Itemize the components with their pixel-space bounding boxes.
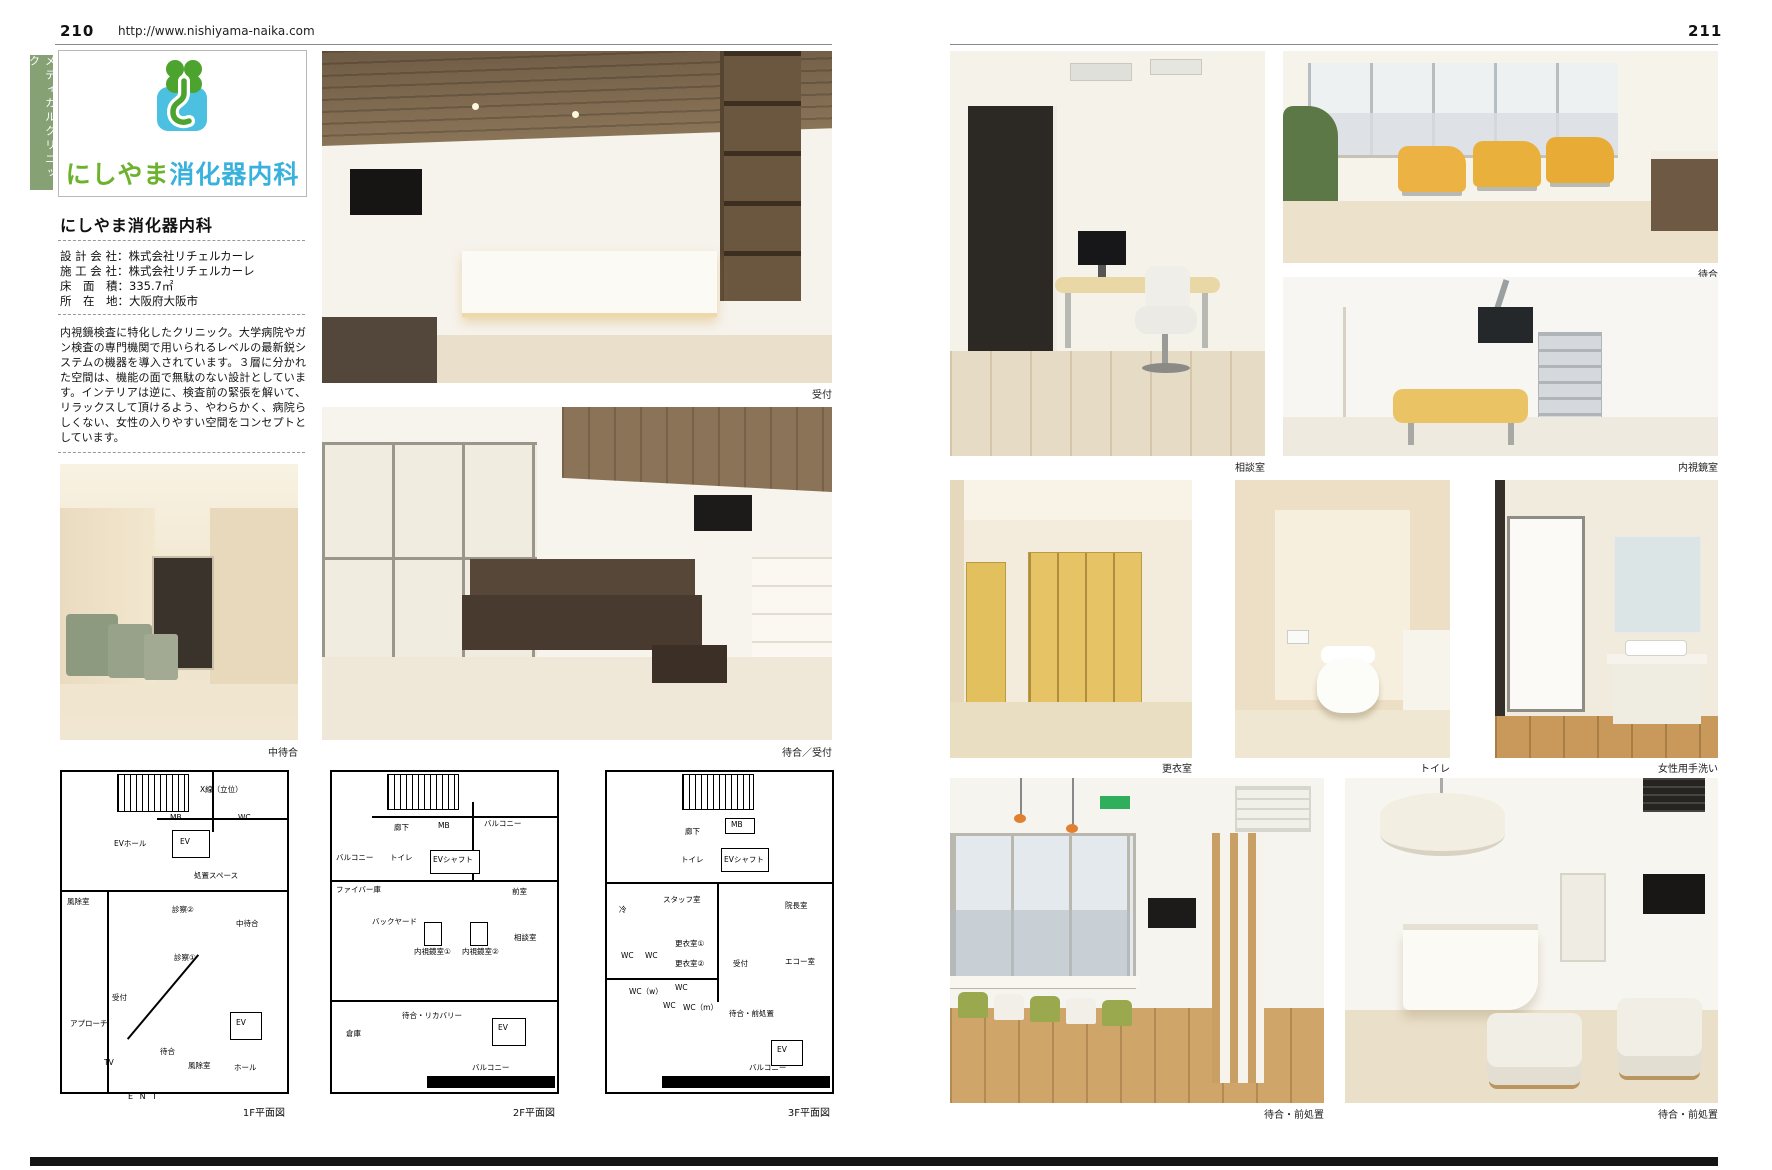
category-tab: メディカルクリニック: [30, 55, 53, 190]
recliner-chair: [1473, 141, 1541, 187]
recliner-chair: [1546, 137, 1614, 183]
monitor-stand: [1098, 265, 1106, 277]
page-title: にしやま消化器内科: [60, 212, 213, 236]
floor-shape: [950, 351, 1265, 456]
endoscopy-tower: [1538, 332, 1602, 429]
photo-changing-room: [950, 480, 1192, 758]
wood-counter: [1651, 159, 1718, 231]
plan-label: エコー室: [785, 958, 815, 966]
plan-wall: [332, 1000, 557, 1002]
pendant-cord: [1020, 778, 1022, 816]
stairs-symbol: [387, 774, 459, 810]
plan-label: ホール: [234, 1064, 257, 1072]
window-counter: [950, 976, 1140, 988]
desk-leg: [1202, 293, 1208, 348]
plan-label: 処置スペース: [194, 872, 238, 880]
info-value: 大阪府大阪市: [129, 294, 198, 308]
plan-label: WC: [663, 1002, 676, 1010]
caption-waiting-pretreat-left: 待合・前処置: [1124, 1106, 1324, 1121]
wood-ceiling-panel: [562, 407, 832, 492]
wash-basin: [1625, 640, 1687, 656]
info-value: 335.7㎡: [129, 279, 173, 293]
plan-label: トイレ: [681, 856, 704, 864]
plan-label: 冷: [619, 906, 627, 914]
clinic-logo-box: にしやま消化器内科: [58, 50, 307, 197]
caption-waiting-reception: 待合／受付: [632, 744, 832, 759]
plan-label: スタッフ室: [663, 896, 701, 904]
plan-label: トイレ: [390, 854, 413, 862]
wall-tv: [694, 495, 752, 531]
photo-waiting-pretreat-right: [1345, 778, 1718, 1103]
info-value: 株式会社リチェルカーレ: [128, 264, 254, 278]
desk-leg: [1065, 293, 1071, 348]
plan-label: 診察②: [172, 906, 194, 914]
caption-ladies-washroom: 女性用手洗い: [1518, 760, 1718, 775]
plan-label: 院長室: [785, 902, 808, 910]
balcony-strip: [662, 1076, 830, 1088]
plan-label: バルコニー: [749, 1064, 786, 1072]
plan-label: バルコニー: [336, 854, 373, 862]
wall-tv: [350, 169, 422, 215]
plan-label: 倉庫: [346, 1030, 361, 1038]
plan-label: WC: [621, 952, 634, 960]
plan-label: ファイバー庫: [336, 886, 381, 894]
elevator-box: [230, 1012, 262, 1040]
caption-changing-room: 更衣室: [992, 760, 1192, 775]
plan-label: バルコニー: [472, 1064, 509, 1072]
plan-label: 廊下: [394, 824, 409, 832]
plan-label: EVホール: [114, 840, 146, 848]
green-chair: [1030, 996, 1060, 1022]
right-page-number: 211: [1688, 22, 1722, 40]
wood-floor: [950, 1008, 1324, 1103]
bed-leg: [1408, 423, 1414, 445]
info-label: 床 面 積：: [60, 279, 129, 293]
plan-label: 風除室: [188, 1062, 211, 1070]
plan-wall: [607, 978, 717, 980]
chair-back: [1145, 266, 1190, 311]
caption-reception: 受付: [632, 386, 832, 401]
clinic-logo-icon: [147, 59, 219, 145]
mirror: [1613, 535, 1702, 634]
page-bottom-bar: [30, 1157, 1718, 1166]
pendant-cord: [1072, 778, 1074, 826]
plan-label: WC（w）: [629, 988, 663, 996]
info-label: 設 計 会 社：: [60, 249, 128, 263]
clinic-logo-wordmark: にしやま消化器内科: [59, 155, 306, 191]
floorplan-1f: X線（立位） MB WC EVホール EV 処置スペース 風除室 診察② 中待合…: [60, 770, 289, 1094]
back-door: [1560, 873, 1606, 962]
green-chair: [958, 992, 988, 1018]
photo-toilet: [1235, 480, 1450, 758]
ceiling-ac-cassette: [1235, 786, 1311, 832]
pendant-lamp: [1066, 824, 1078, 833]
plan-wall: [372, 816, 557, 818]
magazine-spread: 210 http://www.nishiyama-naika.com 211 メ…: [0, 0, 1772, 1170]
sofa-seat: [462, 595, 702, 650]
plan-label: WC: [675, 984, 688, 992]
wall-line: [1343, 307, 1346, 427]
ceiling-shape: [950, 480, 1192, 520]
plan-label: 内視鏡室①: [414, 948, 451, 956]
scope-bed-symbol: [470, 922, 488, 946]
bench-shape: [322, 317, 437, 383]
plan-wall: [717, 882, 719, 1002]
ceiling-spotlight: [572, 111, 579, 118]
recliner-chair: [1398, 146, 1466, 192]
ceiling-vent: [1070, 63, 1132, 81]
plan-label: 廊下: [685, 828, 700, 836]
chair-base: [1142, 363, 1190, 373]
wall-tv: [1643, 874, 1705, 914]
logo-text-blue: 消化器内科: [169, 160, 299, 189]
info-label: 所 在 地：: [60, 294, 129, 308]
caption-plan-2f: 2F平面図: [355, 1104, 555, 1119]
clinic-url: http://www.nishiyama-naika.com: [118, 24, 315, 38]
info-row-build: 施 工 会 社：株式会社リチェルカーレ: [60, 263, 255, 279]
divider: [58, 240, 305, 241]
photo-waiting-reception: [322, 407, 832, 740]
photo-waiting-recliners: [1283, 51, 1718, 263]
reception-counter: [462, 251, 717, 317]
chair-pole: [1162, 334, 1168, 366]
caption-mid-waiting: 中待合: [98, 744, 298, 759]
photo-ladies-washroom: [1495, 480, 1718, 758]
white-chair: [994, 994, 1024, 1020]
green-chair: [1102, 1000, 1132, 1026]
drum-pendant-light: [1380, 793, 1505, 856]
ceiling-ac-unit: [1643, 778, 1705, 812]
locker-single: [966, 562, 1006, 706]
caption-waiting-pretreat-right: 待合・前処置: [1518, 1106, 1718, 1121]
plan-label: EV: [236, 1019, 246, 1027]
plan-label: 風除室: [67, 898, 90, 906]
info-row-location: 所 在 地：大阪府大阪市: [60, 293, 198, 309]
plan-label: 相談室: [514, 934, 537, 942]
caption-toilet: トイレ: [1250, 760, 1450, 775]
white-chair: [1066, 998, 1096, 1024]
plan-label: EV: [498, 1024, 508, 1032]
plan-label: MB: [438, 822, 450, 830]
photo-mid-waiting: [60, 464, 298, 740]
plan-label: EV: [180, 838, 190, 846]
plan-label: バルコニー: [484, 820, 521, 828]
clinic-description: 内視鏡検査に特化したクリニック。大学病院やガン検査の専門機関で用いられるレベルの…: [60, 325, 306, 445]
left-header-rule: [55, 44, 832, 45]
floor-shape: [950, 702, 1192, 758]
divider: [58, 452, 305, 453]
plant-shape: [1283, 106, 1338, 211]
dark-door: [968, 106, 1057, 351]
computer-monitor: [1078, 231, 1126, 265]
plan-label: 更衣室①: [675, 940, 704, 948]
floor-shape: [322, 657, 832, 740]
plan-label: 診察①: [174, 954, 196, 962]
locker-bank: [1028, 552, 1142, 704]
info-label: 施 工 会 社：: [60, 264, 128, 278]
info-row-design: 設 計 会 社：株式会社リチェルカーレ: [60, 248, 255, 264]
photo-reception: [322, 51, 832, 383]
procedure-monitor: [1478, 307, 1533, 343]
vanity-cabinet: [1613, 664, 1701, 724]
left-page-number: 210: [60, 22, 94, 40]
plan-label: バックヤード: [372, 918, 417, 926]
toilet-control-panel: [1287, 630, 1309, 644]
ceiling-vent: [1150, 59, 1202, 75]
wall-tv: [1148, 898, 1196, 928]
plan-wall: [212, 772, 214, 832]
right-header-rule: [950, 44, 1718, 45]
logo-text-green: にしやま: [66, 160, 170, 189]
white-sofa: [1617, 998, 1702, 1076]
caption-plan-3f: 3F平面図: [630, 1104, 830, 1119]
photo-waiting-pretreat-left: [950, 778, 1324, 1103]
wood-shelf-column: [720, 51, 801, 301]
ottoman-shape: [652, 645, 727, 683]
plan-label: MB: [731, 821, 743, 829]
green-chair: [144, 634, 178, 680]
city-view: [950, 910, 1130, 983]
plan-wall: [607, 882, 832, 884]
info-value: 株式会社リチェルカーレ: [128, 249, 254, 263]
plan-label: 受付: [112, 994, 127, 1002]
bed-leg: [1508, 423, 1514, 445]
plan-label: 前室: [512, 888, 527, 896]
ceiling-spotlight: [472, 103, 479, 110]
divider: [58, 314, 305, 315]
plan-entrance-label: E N T: [128, 1092, 159, 1101]
plan-label: 受付: [733, 960, 748, 968]
plan-label: EVシャフト: [433, 856, 473, 864]
exam-bed: [1393, 389, 1528, 423]
toilet-bowl: [1317, 658, 1379, 713]
reception-counter: [752, 557, 832, 672]
plan-label: MB: [170, 814, 182, 822]
plan-label: EV: [777, 1046, 787, 1054]
photo-endoscopy-room: [1283, 277, 1718, 456]
plan-label: WC: [645, 952, 658, 960]
plan-label: 待合・リカバリー: [402, 1012, 462, 1020]
plan-label: アプローチ: [70, 1020, 108, 1028]
plan-label: 内視鏡室②: [462, 948, 499, 956]
pendant-lamp: [1014, 814, 1026, 823]
floorplan-3f: 廊下 MB トイレ EVシャフト スタッフ室 冷 院長室 更衣室① 更衣室② W…: [605, 770, 834, 1094]
plan-label: 更衣室②: [675, 960, 704, 968]
plan-label: EVシャフト: [724, 856, 764, 864]
stairs-symbol: [682, 774, 754, 810]
exit-sign: [1100, 796, 1130, 809]
plan-label: TV: [104, 1059, 114, 1067]
info-row-area: 床 面 積：335.7㎡: [60, 278, 173, 294]
floorplan-2f: バルコニー 廊下 MB バルコニー トイレ EVシャフト ファイバー庫 前室 バ…: [330, 770, 559, 1094]
reception-counter: [1403, 930, 1538, 1010]
plan-wall: [62, 890, 287, 892]
stairs-symbol: [117, 774, 189, 812]
photo-consult-room: [950, 51, 1265, 456]
elevator-box: [172, 830, 210, 858]
plan-label: WC（m）: [683, 1004, 718, 1012]
plan-label: 中待合: [236, 920, 259, 928]
scope-bed-symbol: [424, 922, 442, 946]
floor-shape: [1235, 710, 1450, 758]
caption-plan-1f: 1F平面図: [85, 1104, 285, 1119]
white-sofa: [1487, 1013, 1582, 1085]
chair-seat: [1135, 306, 1197, 334]
plan-label: 待合: [160, 1048, 175, 1056]
caption-consult-room: 相談室: [1065, 459, 1265, 474]
plan-wall: [332, 880, 557, 882]
wood-slat-partition: [1212, 833, 1264, 1083]
corridor-right-wall: [210, 508, 298, 684]
counter-top: [1651, 151, 1718, 159]
plan-diagonal-wall: [127, 954, 199, 1040]
plan-label: WC: [238, 814, 251, 822]
plan-label: 待合・前処置: [729, 1010, 774, 1018]
desk-top: [1055, 277, 1220, 293]
plan-label: X線（立位）: [200, 786, 243, 794]
caption-endoscopy-room: 内視鏡室: [1518, 459, 1718, 474]
washroom-door: [1507, 516, 1585, 712]
balcony-strip: [427, 1076, 555, 1088]
